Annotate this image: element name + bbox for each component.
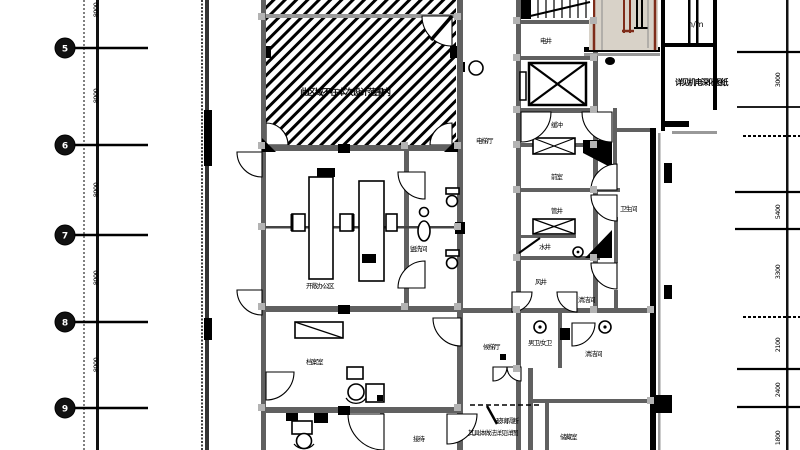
anteroom-label: 前室 [551, 172, 564, 181]
toilet-icon [447, 258, 458, 269]
shaft-c-label: 风井 [535, 277, 548, 286]
hatched-room: 此区域不在本次设计范围内 [261, 0, 483, 146]
sink-icon [418, 221, 430, 241]
door-arc [237, 152, 262, 177]
grid-lines-right [735, 52, 800, 407]
door-arc [266, 372, 294, 400]
floor-plan-drawing: 5 6 7 8 9 8000 8000 8000 8000 8000 3000 [0, 0, 800, 450]
dim-text: 3000 [774, 72, 782, 87]
chair [292, 214, 305, 231]
door-arc [237, 290, 262, 315]
grid-bubbles: 5 6 7 8 9 [55, 38, 75, 418]
wc-corridor-label: 卫生间 [620, 204, 637, 213]
shaft-top-label: 电井 [540, 36, 553, 45]
grid-bubble-label: 8 [62, 319, 68, 329]
washroom-label: 盥洗间 [410, 244, 427, 253]
hatch-room-label: 此区域不在本次设计范围内 [300, 87, 391, 98]
door-arc [348, 414, 384, 450]
door-arc [493, 367, 507, 381]
grid-bubble-label: 5 [62, 45, 68, 55]
desk [292, 421, 312, 434]
lobby-label: 电梯厅 [476, 136, 494, 145]
storage-label: 储藏室 [560, 432, 578, 441]
shaft-a-label: 管井 [551, 206, 564, 215]
sink-icon [420, 208, 429, 217]
small-table [347, 367, 363, 379]
left-grid-column: 5 6 7 8 9 8000 8000 8000 8000 8000 [55, 0, 148, 450]
toilet-icon [446, 188, 459, 194]
office-chair [297, 434, 312, 449]
dim-text: 2100 [774, 337, 782, 352]
lobby2-label: 候梯厅 [483, 342, 501, 351]
dim-text: 8000 [92, 88, 100, 103]
right-dimension-texts: 3000 5400 3300 2100 2400 1800 [774, 72, 782, 445]
escalator [589, 0, 658, 50]
floor-plan-screenshot: 5 6 7 8 9 8000 8000 8000 8000 8000 3000 [0, 0, 800, 450]
solid-wall-fill [585, 230, 612, 258]
grid-bubble-label: 9 [62, 405, 68, 415]
dim-text: 3300 [774, 264, 782, 279]
door-arc [582, 112, 612, 142]
equip-note: 详见机电深化图纸 [675, 77, 728, 87]
office-chair [348, 384, 364, 400]
dim-text: 8000 [92, 357, 100, 372]
shaft-b-label: 水井 [539, 242, 552, 251]
desk [359, 181, 384, 281]
reception-label: 接待 [413, 434, 426, 443]
buffer-label: 缓冲 [551, 120, 564, 129]
level-mark: n/m [688, 20, 704, 29]
wash2-label: 清洁间 [578, 295, 595, 304]
desk [309, 177, 333, 279]
exterior-wall [202, 0, 212, 450]
door-arc [398, 261, 425, 288]
grid-bubble-label: 6 [62, 142, 68, 152]
printer [317, 168, 335, 177]
chair [340, 214, 353, 231]
door-arc [433, 318, 461, 346]
toilet-icon [446, 250, 459, 256]
dim-text: 5400 [774, 204, 782, 219]
printer [362, 254, 376, 263]
grid-lines-left [74, 48, 148, 408]
chair [386, 214, 397, 231]
stair-icon [521, 0, 593, 19]
dim-text: 2400 [774, 382, 782, 397]
door-arc [572, 323, 595, 346]
note-line1: 玻璃隔断 [496, 416, 520, 425]
right-grid-column: 3000 5400 3300 2100 2400 1800 [735, 0, 800, 450]
dim-text: 8000 [92, 182, 100, 197]
dim-text: 8000 [92, 2, 100, 17]
office-label: 开敞办公区 [306, 281, 335, 290]
door-arc [398, 172, 425, 199]
note-line2: 其具体做法详见详图 [468, 428, 518, 437]
wall-symbol [469, 61, 483, 75]
clean-label: 清洁间 [585, 349, 602, 358]
toilet-icon [447, 196, 458, 207]
office-furniture [292, 168, 397, 281]
dim-text: 8000 [92, 270, 100, 285]
dim-text: 1800 [774, 430, 782, 445]
wc-mf-label: 男卫/女卫 [528, 338, 553, 347]
archive-label: 档案室 [306, 357, 324, 366]
elevator-icon [520, 63, 586, 105]
grid-bubble-label: 7 [62, 232, 68, 242]
